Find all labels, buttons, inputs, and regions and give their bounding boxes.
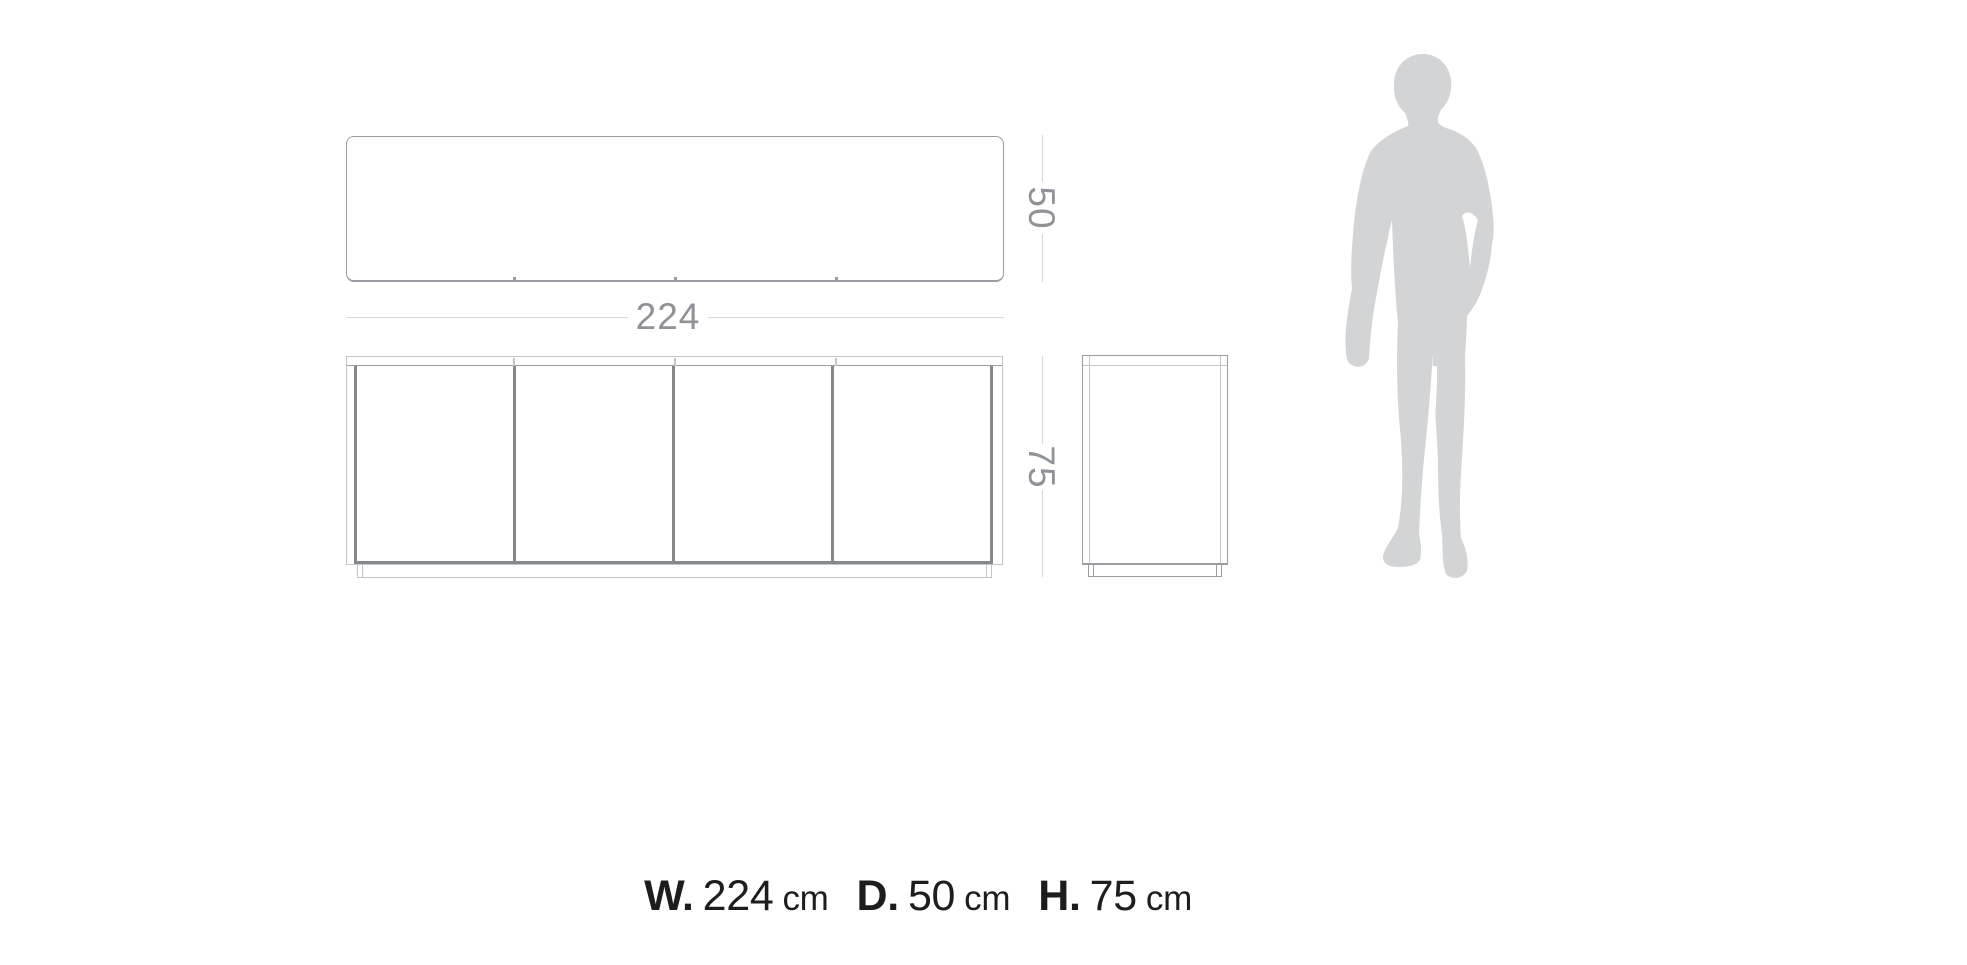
top-panel-edge (1083, 365, 1227, 366)
caption-height: H. 75 cm (1038, 872, 1192, 921)
caption-height-value: 75 (1090, 872, 1137, 921)
door-joint-mark (835, 277, 838, 282)
door-joint-mark (674, 358, 676, 366)
width-dimension-line (708, 317, 1004, 318)
door-row (354, 366, 993, 564)
front-view (346, 356, 1003, 565)
caption-width-value: 224 (703, 872, 774, 921)
door-joint-mark (674, 277, 677, 282)
dimension-diagram-page: 50 224 75 (0, 0, 1967, 965)
door-panel-1 (357, 366, 513, 561)
caption-depth: D. 50 cm (857, 872, 1011, 921)
plinth-edge (1093, 565, 1094, 576)
side-plinth (1088, 565, 1222, 577)
height-dimension-label: 75 (1022, 427, 1060, 507)
side-view (1082, 355, 1228, 565)
plinth-edge (986, 565, 987, 577)
caption-width: W. 224 cm (644, 872, 828, 921)
width-dimension-line (347, 317, 628, 318)
door-joint-mark (835, 358, 837, 366)
top-view-plan (346, 136, 1004, 282)
door-panel-3 (672, 366, 831, 561)
dimensions-caption: W. 224 cm D. 50 cm H. 75 cm (644, 872, 1192, 921)
side-panel-edge (1089, 356, 1090, 563)
door-joint-mark (513, 358, 515, 366)
door-panel-4 (831, 366, 990, 561)
caption-width-unit: cm (782, 879, 828, 919)
caption-height-unit: cm (1146, 879, 1192, 919)
depth-dimension-label: 50 (1022, 168, 1060, 248)
plinth-edge (362, 565, 363, 577)
human-scale-silhouette (1337, 52, 1507, 580)
caption-depth-value: 50 (908, 872, 955, 921)
door-joint-mark (513, 277, 516, 282)
caption-height-label: H. (1038, 872, 1080, 921)
side-panel-edge (1220, 356, 1221, 563)
door-panel-2 (513, 366, 672, 561)
caption-depth-label: D. (857, 872, 899, 921)
width-dimension-label: 224 (628, 298, 708, 336)
caption-depth-unit: cm (964, 879, 1010, 919)
front-plinth (357, 565, 992, 578)
caption-width-label: W. (644, 872, 694, 921)
plinth-edge (1216, 565, 1217, 576)
